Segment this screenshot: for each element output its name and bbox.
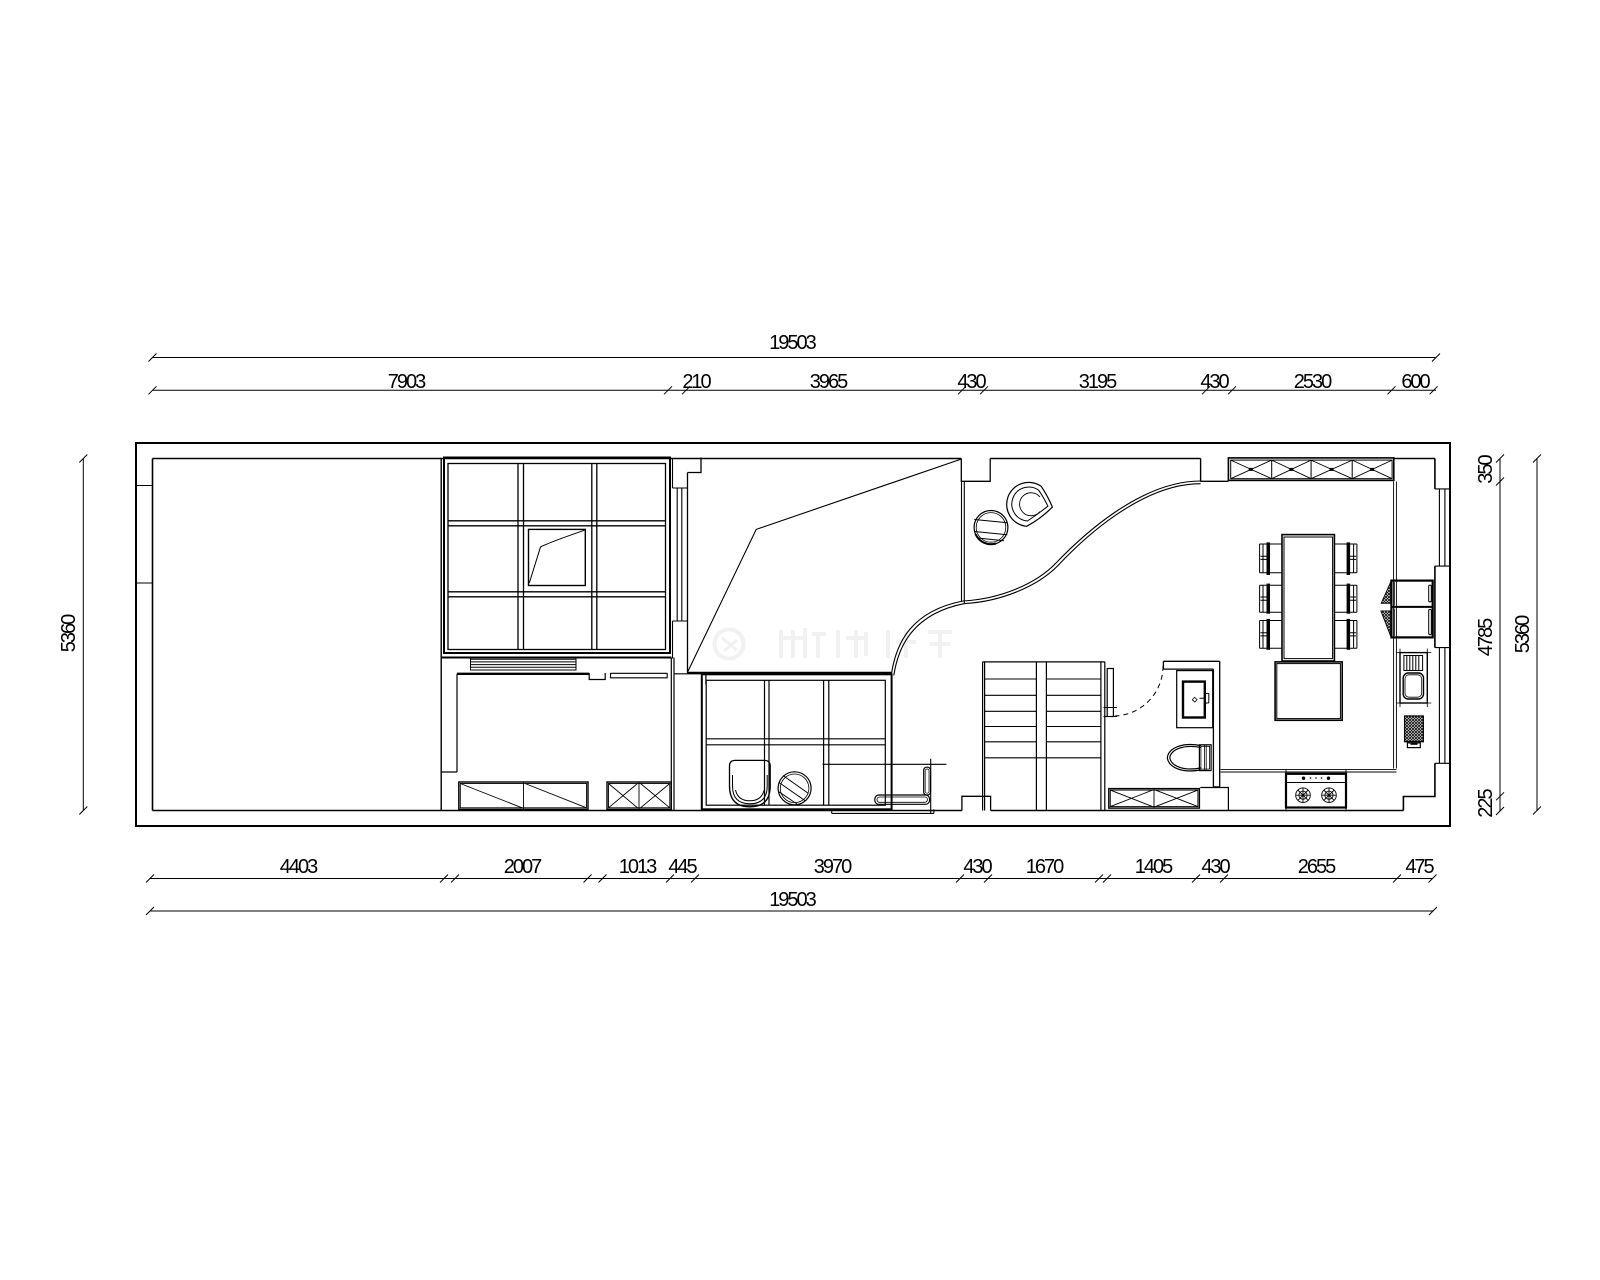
svg-text:19503: 19503 (769, 889, 816, 911)
svg-text:3970: 3970 (814, 856, 852, 878)
svg-text:3965: 3965 (810, 371, 848, 393)
svg-text:2655: 2655 (1298, 856, 1336, 878)
svg-text:1405: 1405 (1135, 856, 1173, 878)
svg-text:1013: 1013 (619, 856, 657, 878)
svg-text:445: 445 (668, 856, 697, 878)
svg-text:225: 225 (1475, 788, 1497, 817)
svg-text:350: 350 (1475, 454, 1497, 483)
svg-text:7903: 7903 (388, 371, 426, 393)
svg-text:2530: 2530 (1294, 371, 1332, 393)
svg-text:430: 430 (963, 856, 992, 878)
svg-text:430: 430 (1201, 856, 1230, 878)
svg-text:4403: 4403 (280, 856, 318, 878)
svg-text:430: 430 (1200, 371, 1229, 393)
svg-text:1670: 1670 (1026, 856, 1064, 878)
svg-text:3195: 3195 (1079, 371, 1117, 393)
svg-text:5360: 5360 (1512, 615, 1534, 653)
svg-text:600: 600 (1401, 371, 1430, 393)
svg-text:2007: 2007 (504, 856, 542, 878)
svg-text:430: 430 (957, 371, 986, 393)
svg-text:19503: 19503 (769, 332, 816, 354)
svg-text:210: 210 (682, 371, 711, 393)
svg-text:4785: 4785 (1475, 618, 1497, 656)
svg-text:475: 475 (1405, 856, 1434, 878)
svg-text:5360: 5360 (58, 614, 80, 652)
